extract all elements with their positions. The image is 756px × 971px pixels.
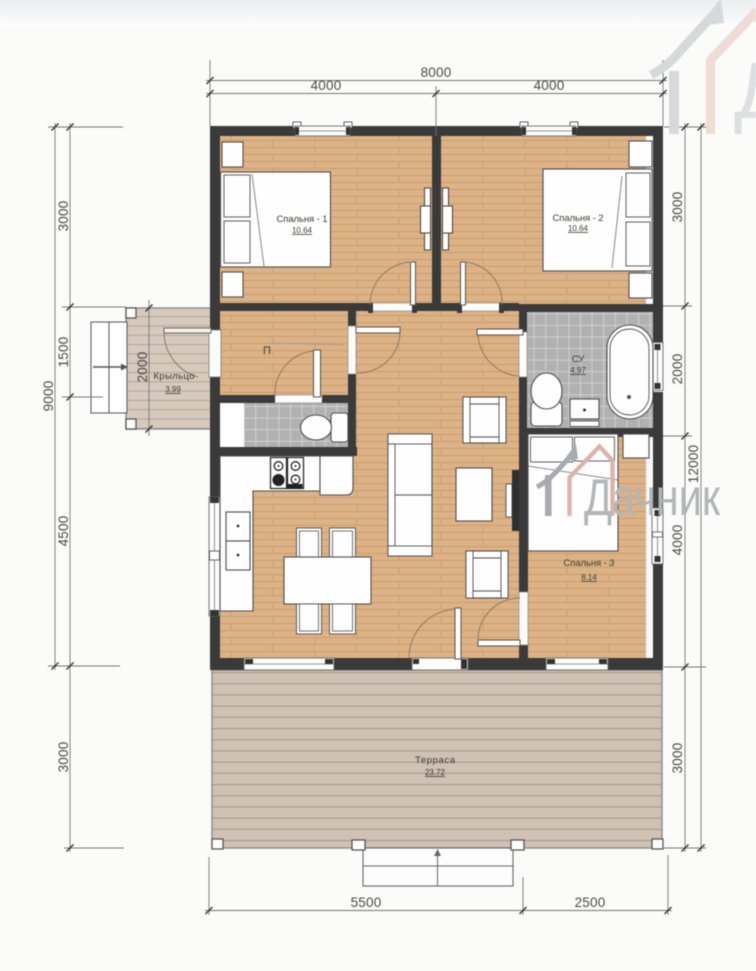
svg-text:4.97: 4.97 xyxy=(570,366,586,375)
svg-text:Спальня - 3: Спальня - 3 xyxy=(564,558,615,569)
svg-text:4500: 4500 xyxy=(56,516,71,547)
svg-text:9000: 9000 xyxy=(41,381,56,412)
svg-text:3000: 3000 xyxy=(56,201,71,232)
svg-text:Дачник: Дачник xyxy=(584,469,720,527)
svg-text:3000: 3000 xyxy=(670,192,685,223)
svg-text:4000: 4000 xyxy=(670,525,685,556)
svg-text:СУ: СУ xyxy=(572,354,586,365)
svg-text:8.14: 8.14 xyxy=(581,573,597,582)
svg-text:2000: 2000 xyxy=(670,354,685,385)
svg-text:3.99: 3.99 xyxy=(165,385,181,394)
svg-text:23.72: 23.72 xyxy=(425,768,446,777)
svg-text:Д: Д xyxy=(734,46,756,135)
svg-text:2500: 2500 xyxy=(575,895,606,910)
svg-text:8000: 8000 xyxy=(421,65,452,80)
svg-text:Крыльцо: Крыльцо xyxy=(154,371,195,382)
svg-text:10.64: 10.64 xyxy=(292,226,313,235)
svg-text:10.64: 10.64 xyxy=(568,224,589,233)
svg-text:П: П xyxy=(263,345,271,357)
svg-text:4000: 4000 xyxy=(311,78,342,93)
svg-text:1500: 1500 xyxy=(56,337,71,368)
svg-text:Спальня - 2: Спальня - 2 xyxy=(553,213,604,224)
svg-text:3000: 3000 xyxy=(56,742,71,773)
svg-text:3000: 3000 xyxy=(670,743,685,774)
svg-text:5500: 5500 xyxy=(351,895,382,910)
svg-text:Спальня - 1: Спальня - 1 xyxy=(277,214,328,225)
svg-text:2000: 2000 xyxy=(135,352,150,383)
svg-text:Терраса: Терраса xyxy=(415,755,456,766)
svg-text:4000: 4000 xyxy=(534,78,565,93)
